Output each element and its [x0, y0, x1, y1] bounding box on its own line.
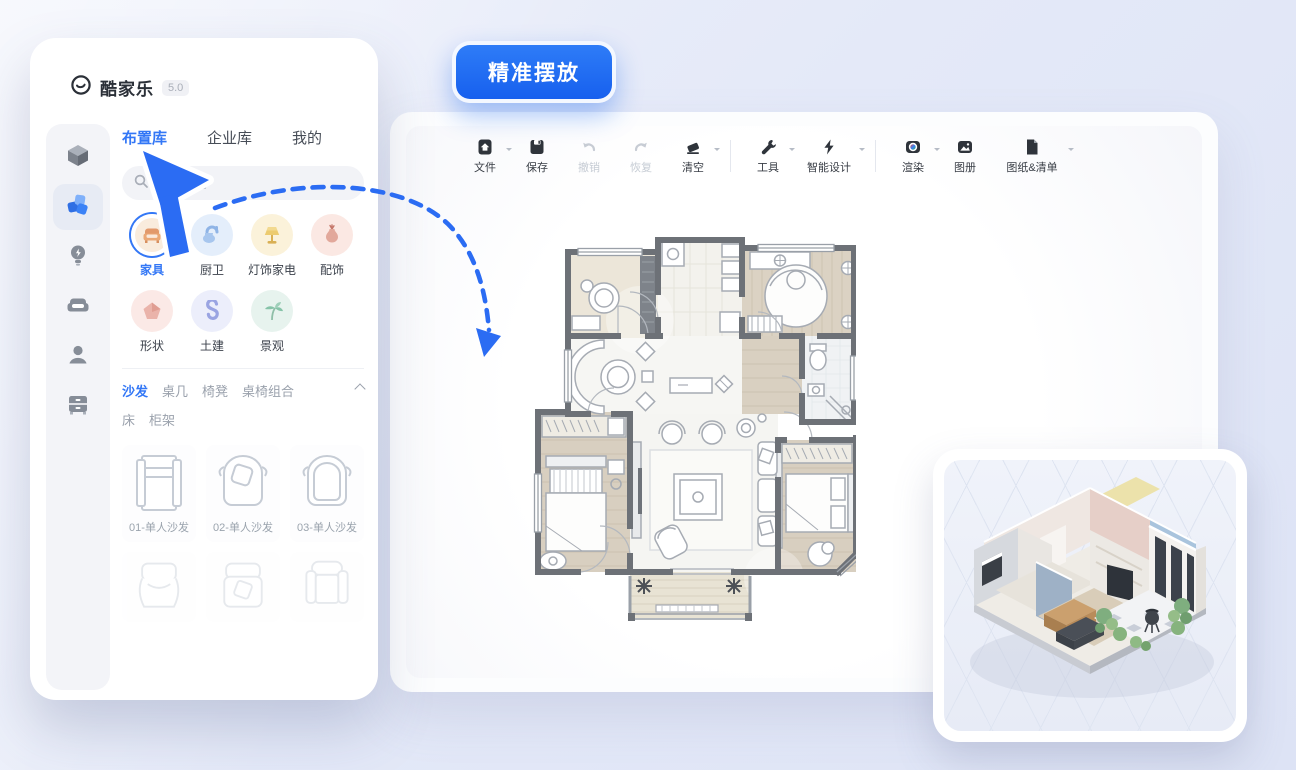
product-item[interactable] — [206, 552, 280, 622]
camera-icon — [904, 138, 922, 156]
subcategory-cabinet-shelf[interactable]: 柜架 — [149, 410, 175, 429]
category-furniture[interactable]: 家具 — [122, 214, 182, 278]
category-construction[interactable]: 土建 — [182, 290, 242, 354]
category-lighting-appliance[interactable]: 灯饰家电 — [242, 214, 302, 278]
decor-icon — [311, 214, 353, 256]
product-item[interactable] — [290, 552, 364, 622]
undo-icon — [580, 138, 598, 156]
brand-logo: 酷家乐 5.0 — [70, 74, 189, 101]
search-icon — [134, 174, 148, 193]
file-icon — [476, 138, 494, 156]
product-item[interactable] — [122, 552, 196, 622]
subcategory-row-2: 床 柜架 — [122, 410, 364, 429]
tab-layout-library[interactable]: 布置库 — [122, 127, 167, 148]
tool-rail — [46, 124, 110, 690]
rail-item-cabinet[interactable] — [53, 384, 103, 430]
drawings-list-button[interactable]: 图纸&清单 — [994, 136, 1070, 177]
3d-preview-card — [933, 449, 1247, 742]
caret-icon — [859, 148, 865, 154]
render-button[interactable]: 渲染 — [890, 136, 936, 177]
lighting-appliance-icon — [251, 214, 293, 256]
tab-mine[interactable]: 我的 — [292, 127, 322, 148]
product-item[interactable]: 01-单人沙发 — [122, 445, 196, 542]
search-input[interactable] — [156, 176, 326, 191]
category-grid: 家具 厨卫 灯饰家电 配饰 — [122, 214, 364, 354]
category-kitchen-bath[interactable]: 厨卫 — [182, 214, 242, 278]
caret-icon — [1068, 148, 1074, 154]
eraser-icon — [684, 138, 702, 156]
caret-icon — [506, 148, 512, 154]
subcategory-tables[interactable]: 桌几 — [162, 381, 188, 400]
subcategory-chairs[interactable]: 椅凳 — [202, 381, 228, 400]
version-badge: 5.0 — [162, 80, 189, 96]
rail-item-furniture[interactable] — [53, 284, 103, 330]
caret-icon — [789, 148, 795, 154]
divider — [122, 368, 364, 369]
feature-badge-label: 精准摆放 — [488, 62, 580, 85]
product-item[interactable]: 02-单人沙发 — [206, 445, 280, 542]
category-landscape[interactable]: 景观 — [242, 290, 302, 354]
save-icon — [528, 138, 546, 156]
landscape-icon — [251, 290, 293, 332]
subcategory-sofa[interactable]: 沙发 — [122, 381, 148, 400]
construction-icon — [191, 290, 233, 332]
category-shape[interactable]: 形状 — [122, 290, 182, 354]
product-item[interactable]: 03-单人沙发 — [290, 445, 364, 542]
rail-item-lighting[interactable] — [53, 234, 103, 280]
3d-house-render — [944, 466, 1236, 728]
redo-button[interactable]: 恢复 — [618, 136, 664, 177]
save-button[interactable]: 保存 — [514, 136, 560, 177]
sofa-01-thumb — [127, 449, 191, 517]
feature-badge: 精准摆放 — [452, 41, 616, 103]
bulb-icon — [65, 242, 91, 273]
product-grid: 01-单人沙发 02-单人沙发 03-单人沙发 — [122, 445, 364, 622]
wrench-icon — [759, 138, 777, 156]
sofa-03-thumb — [295, 449, 359, 517]
sheet-icon — [1023, 138, 1041, 156]
search-bar[interactable] — [122, 166, 364, 200]
chevron-up-icon[interactable] — [354, 383, 365, 394]
editor-toolbar: 文件 保存 撤销 恢复 清空 — [462, 130, 1070, 182]
album-button[interactable]: 图册 — [942, 136, 988, 177]
cube-icon — [65, 142, 91, 173]
library-tabs: 布置库 企业库 我的 — [122, 120, 364, 154]
caret-icon — [934, 148, 940, 154]
bolt-icon — [820, 138, 838, 156]
rail-item-account[interactable] — [53, 334, 103, 380]
toolbar-divider — [875, 140, 876, 172]
rail-item-cube[interactable] — [53, 134, 103, 180]
3d-viewport[interactable] — [944, 460, 1236, 731]
sofa-02-thumb — [211, 449, 275, 517]
floor-plan[interactable] — [520, 228, 856, 624]
kitchen-bath-icon — [191, 214, 233, 256]
clear-button[interactable]: 清空 — [670, 136, 716, 177]
redo-icon — [632, 138, 650, 156]
subcategory-bed[interactable]: 床 — [122, 410, 135, 429]
caret-icon — [714, 148, 720, 154]
material-panel: 酷家乐 5.0 布置库 企业库 我的 — [30, 38, 378, 700]
undo-button[interactable]: 撤销 — [566, 136, 612, 177]
logo-icon — [70, 74, 92, 101]
toolbar-divider — [730, 140, 731, 172]
category-decor[interactable]: 配饰 — [302, 214, 362, 278]
tools-button[interactable]: 工具 — [745, 136, 791, 177]
rail-item-materials[interactable] — [53, 184, 103, 230]
furniture-icon — [131, 214, 173, 256]
blocks-icon — [65, 192, 91, 223]
person-icon — [65, 342, 91, 373]
brand-name: 酷家乐 — [100, 75, 154, 100]
file-button[interactable]: 文件 — [462, 136, 508, 177]
album-icon — [956, 138, 974, 156]
subcategory-table-chair-set[interactable]: 桌椅组合 — [242, 381, 294, 400]
subcategory-row: 沙发 桌几 椅凳 桌椅组合 — [122, 381, 364, 400]
smart-design-button[interactable]: 智能设计 — [797, 136, 861, 177]
sofa-icon — [65, 292, 91, 323]
tab-enterprise-library[interactable]: 企业库 — [207, 127, 252, 148]
cabinet-icon — [65, 392, 91, 423]
library-content: 布置库 企业库 我的 家具 厨卫 — [122, 120, 364, 622]
shape-icon — [131, 290, 173, 332]
